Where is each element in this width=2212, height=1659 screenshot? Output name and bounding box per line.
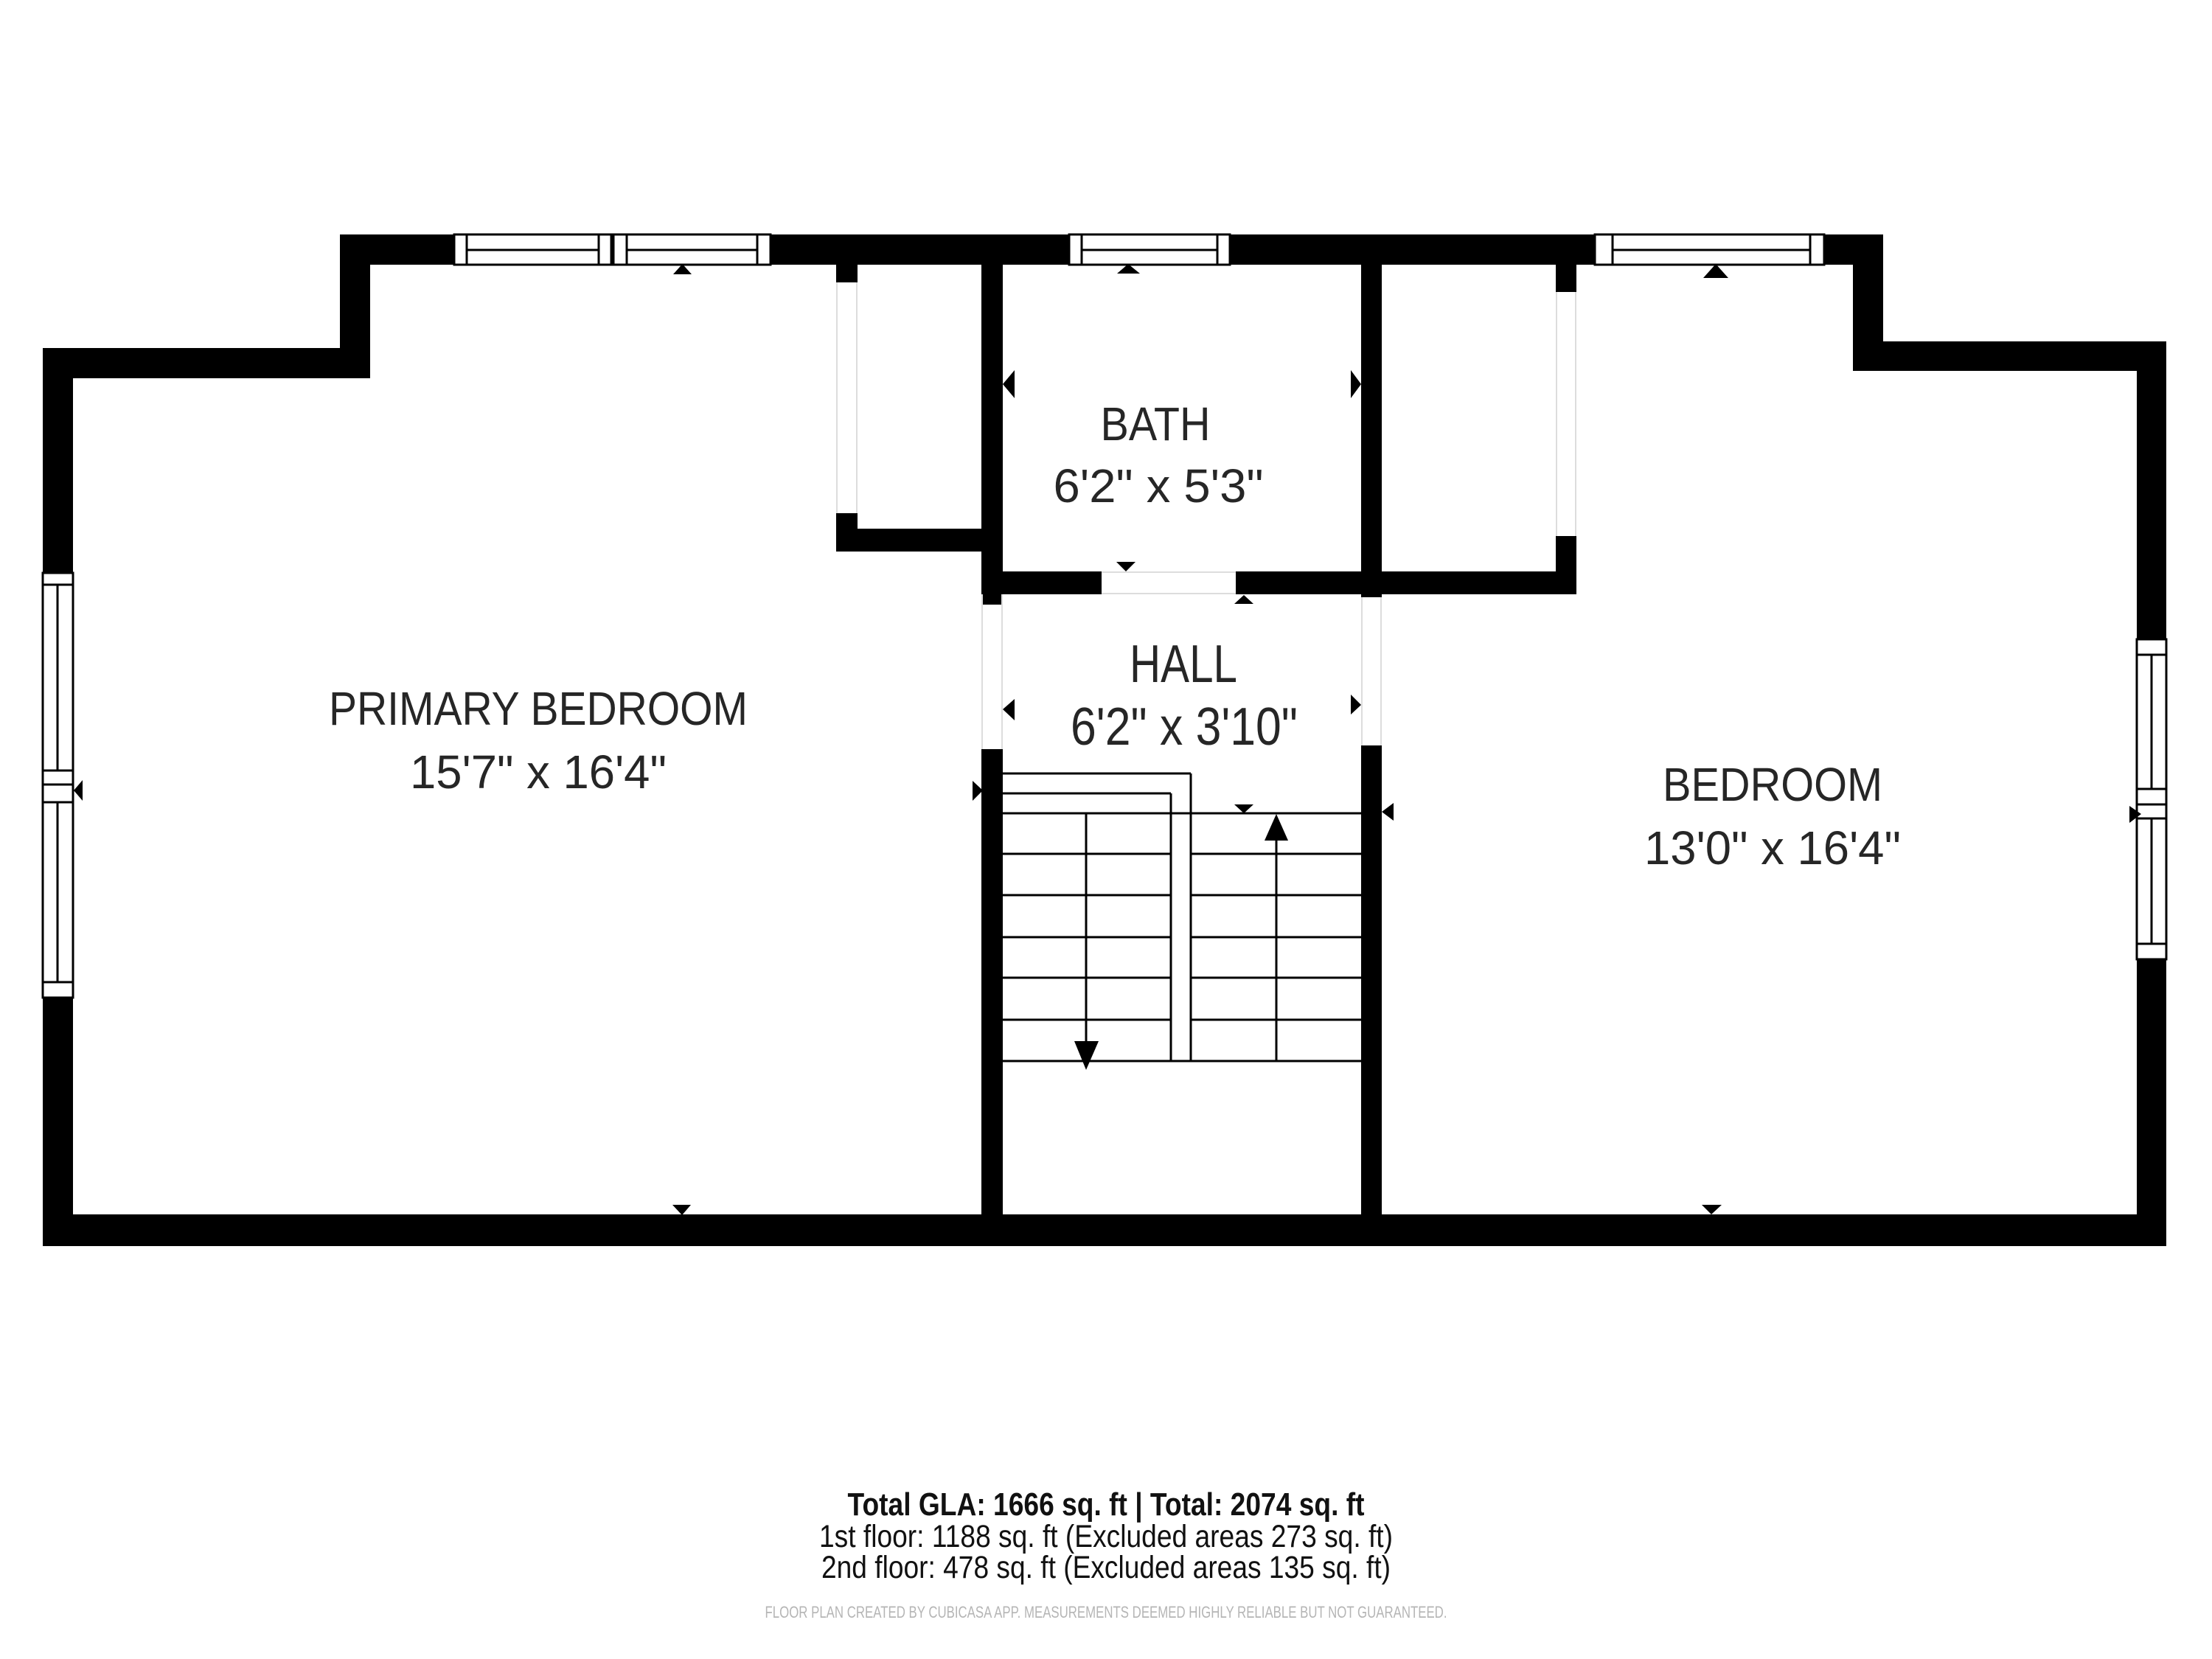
svg-text:15'7" x 16'4": 15'7" x 16'4" [410,745,667,799]
svg-text:1st floor: 1188 sq. ft (Exclud: 1st floor: 1188 sq. ft (Excluded areas 2… [819,1519,1393,1554]
svg-text:Total GLA: 1666 sq. ft | Total: Total GLA: 1666 sq. ft | Total: 2074 sq.… [848,1486,1365,1523]
svg-text:FLOOR PLAN CREATED BY CUBICASA: FLOOR PLAN CREATED BY CUBICASA APP. MEAS… [765,1603,1447,1621]
svg-text:BEDROOM: BEDROOM [1663,758,1882,811]
svg-text:6'2" x 5'3": 6'2" x 5'3" [1054,459,1264,512]
svg-text:PRIMARY BEDROOM: PRIMARY BEDROOM [329,682,748,735]
svg-text:6'2" x 3'10": 6'2" x 3'10" [1071,698,1298,757]
svg-text:BATH: BATH [1101,397,1211,451]
svg-text:HALL: HALL [1130,635,1237,694]
svg-text:2nd floor: 478 sq. ft (Exclude: 2nd floor: 478 sq. ft (Excluded areas 13… [821,1550,1391,1585]
svg-text:13'0" x 16'4": 13'0" x 16'4" [1644,821,1901,874]
